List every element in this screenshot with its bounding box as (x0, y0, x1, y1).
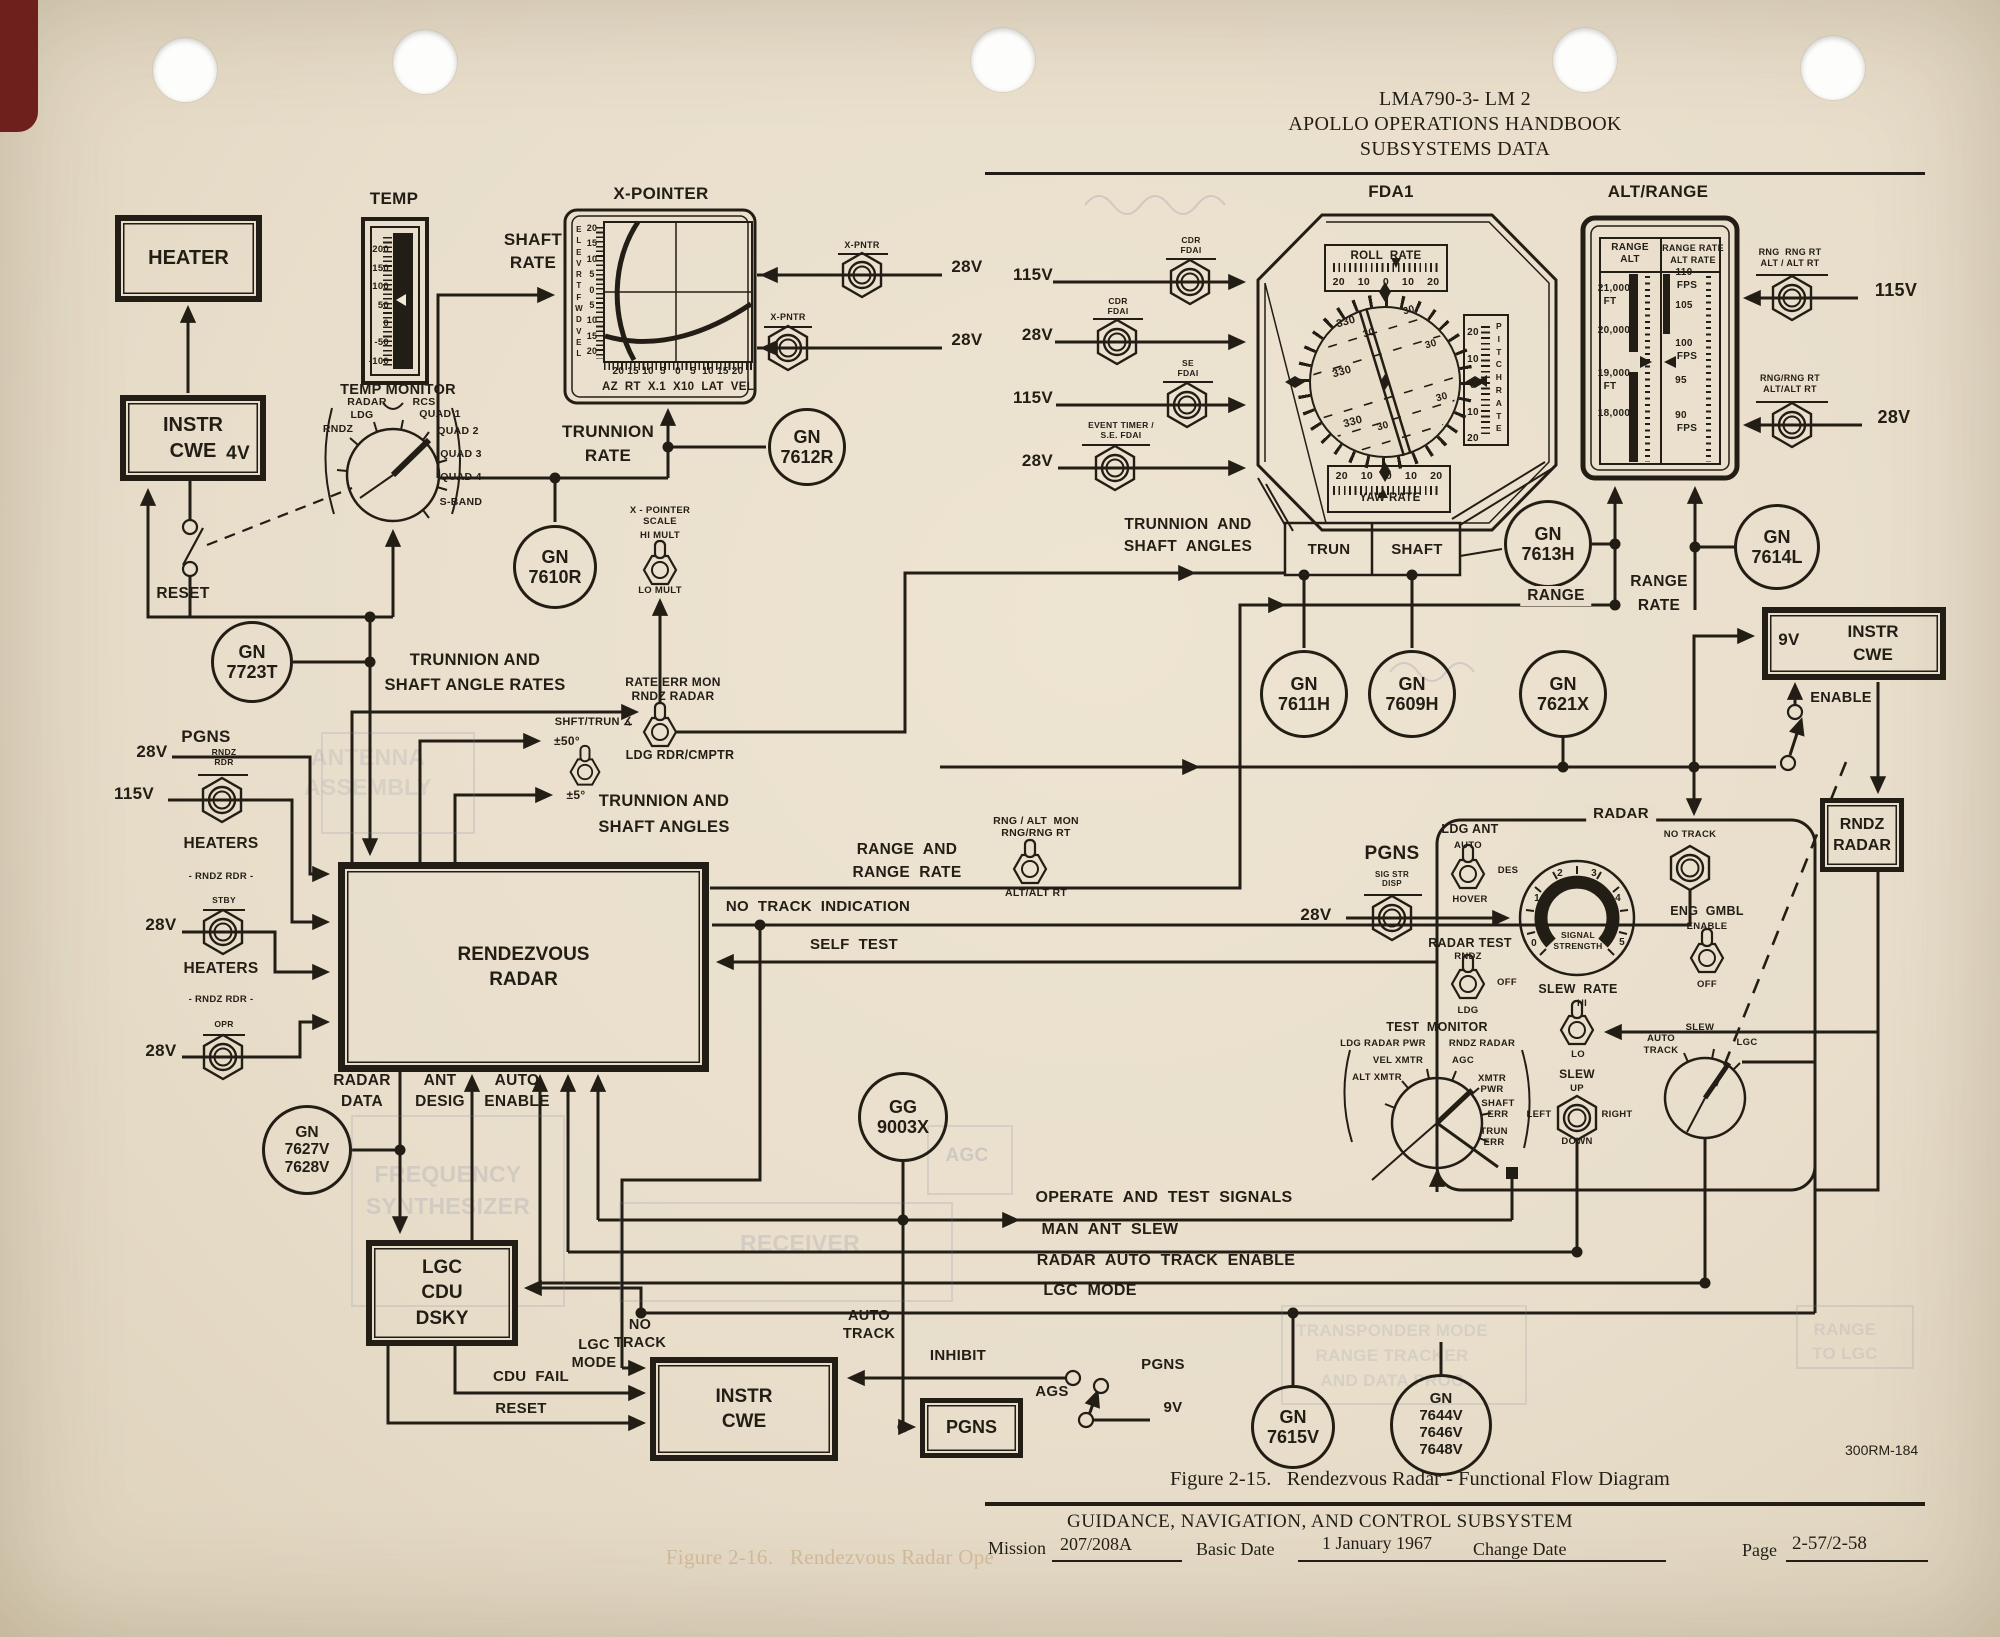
tm-xmtr-pwr: XMTR PWR (1478, 1073, 1506, 1095)
ss-0: 0 (1531, 938, 1537, 950)
ldg-ant-des: DES (1498, 866, 1518, 877)
tm-rndz: RNDZ (323, 423, 353, 435)
gn-7621x: GN 7621X (1519, 650, 1607, 738)
tm-quad3: QUAD 3 (440, 448, 481, 460)
slew-rate-lo: LO (1571, 1050, 1585, 1061)
lgc-mode-bottom: LGC MODE (572, 1336, 617, 1372)
drawing-ref: 300RM-184 (1845, 1442, 1918, 1458)
eng-gmbl-enable: ENABLE (1687, 922, 1728, 933)
trunnion-rate: TRUNNION RATE (562, 420, 654, 468)
xp-left-nums: 20 15 10 5 0 5 10 15 20 (587, 221, 598, 360)
radar-panel-label: RADAR (1586, 804, 1656, 823)
ss-2: 2 (1557, 868, 1563, 880)
reset-bottom: RESET (495, 1400, 547, 1417)
heaters-2: HEATERS (183, 960, 258, 978)
footer-mission-value: 207/208A (1060, 1534, 1132, 1555)
ags: AGS (1035, 1383, 1068, 1400)
footer-change-date-label: Change Date (1473, 1539, 1566, 1560)
footer-underline (1786, 1560, 1928, 1562)
footer-page-value: 2-57/2-58 (1792, 1533, 1867, 1555)
auto-track-label: AUTO TRACK (1644, 1033, 1679, 1056)
gn-7615v: GN 7615V (1251, 1385, 1335, 1469)
pgns-left: PGNS (181, 727, 230, 747)
trun-cell: TRUN (1308, 541, 1351, 558)
radar-data: RADAR DATA (333, 1070, 390, 1112)
footer-underline (1298, 1560, 1666, 1562)
conn-xpntr-2-label: X-PNTR (770, 312, 805, 322)
slew-4way: SLEW (1559, 1068, 1595, 1082)
conn-no-track-label: NO TRACK (1664, 830, 1717, 841)
ar-110: 110 (1675, 267, 1692, 279)
ar-21000: 21,000 (1598, 283, 1630, 295)
radar-auto-track-enable: RADAR AUTO TRACK ENABLE (1037, 1252, 1295, 1270)
rate-err-mon: RATE/ERR MON RNDZ RADAR (625, 676, 720, 703)
gg-9003x: GG 9003X (858, 1072, 948, 1162)
ar-19000: 19,000 (1598, 368, 1630, 380)
punch-hole (971, 28, 1035, 92)
shft-trun-angle: SHFT/TRUN ∡ (555, 716, 634, 729)
conn-rng-rngrt-1: RNG RNG RT ALT / ALT RT (1759, 247, 1822, 269)
pm50: ±50° (554, 735, 580, 749)
gn-7613h: GN 7613H (1504, 500, 1592, 588)
radar-test-rndz: RNDZ (1454, 952, 1482, 963)
xps-hi-mult: HI MULT (640, 531, 680, 542)
rng-alt-mon-toggle[interactable] (1014, 840, 1046, 883)
xps-title: X - POINTER SCALE (630, 505, 690, 527)
radar-test: RADAR TEST (1428, 936, 1512, 950)
no-track-bottom: NO TRACK (614, 1316, 666, 1352)
volt-28v-g: 28V (1022, 325, 1053, 345)
range-rate-label: RANGE RATE (1630, 570, 1687, 618)
footer-page-label: Page (1742, 1540, 1777, 1561)
footer-mission-label: Mission (988, 1538, 1046, 1559)
tm-rcs: RCS (412, 396, 435, 408)
conn-xpntr-1-label: X-PNTR (844, 240, 879, 250)
signal-strength: SIGNAL STRENGTH (1553, 930, 1602, 951)
ss-5: 5 (1619, 937, 1625, 949)
shaft-rate: SHAFT RATE (504, 228, 562, 274)
ar-head-right: RANGE RATE ALT RATE (1662, 242, 1724, 266)
rate-err-mon-toggle[interactable] (644, 703, 676, 746)
test-monitor: TEST MONITOR (1386, 1020, 1488, 1034)
pgns-panel: PGNS (1364, 843, 1419, 865)
yaw-rate: YAW RATE (1359, 492, 1420, 505)
ss-1: 1 (1534, 893, 1540, 905)
heater-box: HEATER (115, 215, 262, 302)
slew-up: UP (1570, 1084, 1584, 1095)
volt-28v-e: 28V (951, 330, 982, 350)
volt-28v-b: 28V (145, 915, 176, 935)
rendezvous-radar-box: RENDEZVOUS RADAR (338, 862, 709, 1072)
rndz-radar-box: RNDZ RADAR (1820, 798, 1904, 872)
punch-hole (1553, 28, 1617, 92)
pm5: ±5° (567, 789, 586, 803)
conn-event-timer: EVENT TIMER / S.E. FDAI (1088, 420, 1154, 440)
tm-shaft-err: SHAFT ERR (1481, 1098, 1514, 1120)
ar-95: 95 (1675, 375, 1687, 387)
instr-cwe-left-box: INSTR CWE (120, 395, 266, 481)
volt-28v-i: 28V (1878, 407, 1911, 428)
volt-28v-a: 28V (136, 742, 167, 762)
tm-quad1: QUAD 1 (419, 408, 460, 420)
ant-desig: ANT DESIG (415, 1070, 465, 1112)
footer-rule (985, 1502, 1925, 1506)
ar-ft-2: FT (1604, 381, 1617, 393)
xp-bottom-axis: AZ RT X.1 X10 LAT VEL (602, 381, 754, 394)
eng-gmbl-off: OFF (1697, 980, 1717, 991)
pgns-box: PGNS (920, 1398, 1023, 1458)
volt-28v-h: 28V (1022, 451, 1053, 471)
radar-test-off: OFF (1497, 978, 1517, 989)
conn-opr-label: OPR (214, 1020, 233, 1030)
heaters-1: HEATERS (183, 835, 258, 853)
trun-shaft-angle-rates: TRUNNION AND SHAFT ANGLE RATES (384, 648, 565, 698)
conn-stby-label: STBY (212, 896, 236, 906)
alt-range-title: ALT/RANGE (1608, 182, 1709, 202)
tm-quad2: QUAD 2 (437, 425, 478, 437)
roll-nums: 20 10 0 10 20 (1333, 276, 1440, 288)
ss-4: 4 (1615, 893, 1621, 905)
footer-underline (1052, 1560, 1182, 1562)
xps-lo-mult: LO MULT (638, 586, 682, 597)
volt-28v-d: 28V (951, 257, 982, 277)
handbook-page: LMA790-3- LM 2 APOLLO OPERATIONS HANDBOO… (0, 0, 2000, 1637)
trun-shaft-angles-right: TRUNNION AND SHAFT ANGLES (1124, 514, 1252, 558)
tm-agc: AGC (1452, 1056, 1474, 1067)
tm-sband: S-BAND (440, 496, 483, 508)
gn-7614l: GN 7614L (1734, 504, 1820, 590)
tm-alt-xmtr: ALT XMTR (1352, 1073, 1402, 1084)
xp-bottom-nums: 20 15 10 5 0 5 10 15 20 (612, 366, 743, 378)
eng-gmbl: ENG GMBL (1670, 904, 1744, 918)
pgns-switch-label: PGNS (1141, 1356, 1185, 1373)
conn-sig-str-disp: SIG STR DISP (1375, 870, 1409, 888)
auto-enable: AUTO ENABLE (484, 1070, 550, 1112)
footer-basic-date-label: Basic Date (1196, 1539, 1274, 1560)
punch-hole (1801, 36, 1865, 100)
conn-se-fdai: SE FDAI (1177, 358, 1198, 378)
shft-trun-toggle[interactable] (571, 746, 600, 785)
ldg-rdr-cmptr: LDG RDR/CMPTR (626, 748, 735, 762)
connector-no-track (1671, 846, 1709, 890)
punch-hole (153, 38, 217, 102)
tm-quad4: QUAD 4 (440, 471, 481, 483)
gn-7627v-7628v: GN 7627V 7628V (262, 1105, 352, 1195)
ar-fps-2: FPS (1677, 351, 1697, 363)
ar-100: 100 (1675, 338, 1693, 350)
slew-right: RIGHT (1601, 1110, 1632, 1121)
gn-7612r: GN 7612R (768, 408, 846, 486)
reset-left: RESET (156, 585, 209, 603)
tm-trun-err: TRUN ERR (1480, 1126, 1508, 1148)
ar-fps-1: FPS (1677, 280, 1697, 292)
xpointer-scale-toggle[interactable] (644, 541, 676, 584)
slew-down: DOWN (1561, 1137, 1592, 1148)
ar-head-left: RANGE ALT (1611, 242, 1649, 266)
volt-28v-c: 28V (145, 1041, 176, 1061)
lgc-cdu-dsky-box: LGC CDU DSKY (366, 1240, 518, 1346)
ar-105: 105 (1675, 300, 1693, 312)
cdu-fail: CDU FAIL (493, 1368, 569, 1385)
roll-rate: ROLL RATE (1351, 250, 1422, 263)
slew-left: LEFT (1527, 1110, 1552, 1121)
header-rule (985, 172, 1925, 175)
conn-cdr-fdai-1: CDR FDAI (1180, 235, 1201, 255)
punch-hole (393, 30, 457, 94)
temp-title: TEMP (370, 189, 418, 209)
header-doc-number: LMA790-3- LM 2 (1379, 88, 1531, 111)
temp-scale: 200 150 100 50 0 -50 -100 (369, 241, 389, 371)
instr-cwe-4v: 4V (226, 443, 250, 465)
alt-alt-rt: ALT/ALT RT (1005, 887, 1067, 899)
trun-shaft-angles-left: TRUNNION AND SHAFT ANGLES (598, 788, 729, 840)
shaft-cell: SHAFT (1391, 541, 1443, 558)
ar-ft-1: FT (1604, 296, 1617, 308)
gn-7610r: GN 7610R (513, 525, 597, 609)
gn-7644v-7646v-7648v: GN 7644V 7646V 7648V (1390, 1374, 1492, 1476)
ss-3: 3 (1591, 868, 1597, 880)
slew-rate-hi: HI (1577, 999, 1587, 1010)
conn-rng-rngrt-2: RNG/RNG RT ALT/ALT RT (1760, 373, 1820, 395)
conn-cdr-fdai-2: CDR FDAI (1107, 296, 1128, 316)
radar-test-ldg: LDG (1458, 1006, 1479, 1017)
nine-v-switch: 9V (1164, 1399, 1183, 1416)
ar-fps-3: FPS (1677, 423, 1697, 435)
footer-basic-date-value: 1 January 1967 (1322, 1533, 1432, 1554)
self-test: SELF TEST (810, 936, 898, 953)
volt-115v-b: 115V (1013, 265, 1053, 285)
gn-7723t: GN 7723T (211, 621, 293, 703)
inhibit: INHIBIT (930, 1347, 986, 1364)
figure-caption: Figure 2-15. Rendezvous Radar - Function… (1170, 1468, 1670, 1491)
conn-rndz-rdr-label: RNDZ RDR (212, 748, 237, 767)
instr-cwe-bottom-box: INSTR CWE (650, 1357, 838, 1461)
pitch-nums: 20 10 0 10 20 (1467, 320, 1479, 453)
ldg-ant: LDG ANT (1441, 822, 1498, 836)
footer-subsystem: GUIDANCE, NAVIGATION, AND CONTROL SUBSYS… (990, 1511, 1650, 1533)
eng-gmbl-toggle[interactable] (1691, 929, 1723, 972)
slew-4way-switch[interactable] (1558, 1096, 1596, 1140)
header-title: APOLLO OPERATIONS HANDBOOK (1288, 113, 1621, 136)
range-label: RANGE (1520, 586, 1591, 606)
heaters-2-sub: - RNDZ RDR - (189, 995, 254, 1006)
signal-strength-knob[interactable] (1520, 861, 1634, 975)
volt-115v-a: 115V (114, 784, 154, 804)
nine-v-box-label: 9V (1778, 630, 1799, 650)
ar-18000: 18,000 (1598, 408, 1630, 420)
volt-28v-j: 28V (1300, 905, 1331, 925)
yaw-nums: 20 10 0 10 20 (1336, 470, 1443, 482)
slew-rate: SLEW RATE (1538, 982, 1617, 996)
tm-ldg: LDG (350, 409, 373, 421)
no-track-indication-left: NO TRACK INDICATION (726, 898, 910, 915)
volt-115v-d: 115V (1875, 280, 1917, 301)
binder-corner (0, 0, 38, 132)
tm-rndz-radar: RNDZ RADAR (1449, 1039, 1515, 1050)
volt-115v-c: 115V (1013, 388, 1053, 408)
gn-7611h: GN 7611H (1260, 650, 1348, 738)
xpointer-title: X-POINTER (613, 184, 708, 204)
lgc-mode-line: LGC MODE (1043, 1282, 1136, 1300)
man-ant-slew: MAN ANT SLEW (1042, 1221, 1179, 1239)
ldg-ant-hover: HOVER (1452, 895, 1487, 906)
fda1-title: FDA1 (1368, 182, 1414, 202)
pitch-letters: P I T C H R A T E (1496, 320, 1502, 435)
heaters-1-sub: - RNDZ RDR - (189, 872, 254, 883)
gn-7609h: GN 7609H (1368, 650, 1456, 738)
header-subtitle: SUBSYSTEMS DATA (1360, 138, 1550, 161)
ar-20000: 20,000 (1598, 325, 1630, 337)
auto-track-lgc: LGC (1737, 1038, 1758, 1049)
tm-vel-xmtr: VEL XMTR (1373, 1056, 1423, 1067)
ldg-ant-auto: AUTO (1454, 841, 1482, 852)
xp-axis-letters: E L E V R T F W D V E L (575, 224, 583, 360)
operate-and-test: OPERATE AND TEST SIGNALS (1035, 1189, 1292, 1207)
tm-radar: RADAR (347, 396, 386, 408)
enable-right: ENABLE (1810, 690, 1871, 707)
tm-ldg-radar-pwr: LDG RADAR PWR (1340, 1039, 1426, 1050)
auto-track-slew: SLEW (1686, 1023, 1715, 1034)
ar-90: 90 (1675, 410, 1687, 422)
auto-track-bottom: AUTO TRACK (843, 1307, 895, 1343)
auto-track-rotary[interactable] (1665, 1049, 1745, 1138)
range-and-range-rate: RANGE AND RANGE RATE (853, 838, 962, 884)
rng-alt-mon: RNG / ALT MON RNG/RNG RT (993, 815, 1079, 839)
